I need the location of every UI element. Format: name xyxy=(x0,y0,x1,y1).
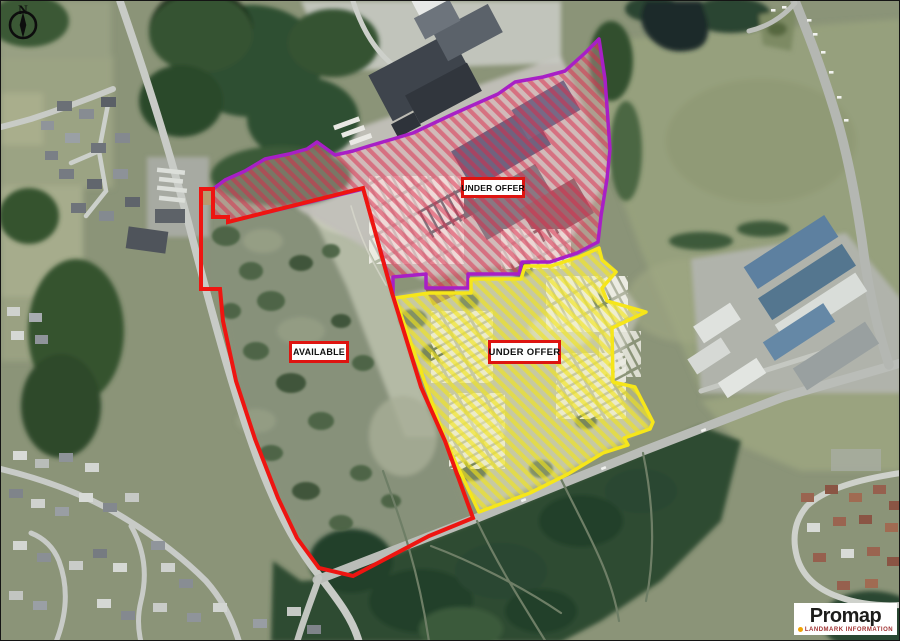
promap-wordmark: Promap xyxy=(810,606,881,626)
aerial-map: ) ) xyxy=(1,1,900,641)
promap-logo: Promap LANDMARK INFORMATION xyxy=(794,603,897,635)
promap-aerial-export: ) ) xyxy=(0,0,900,641)
under-offer-south-text: UNDER OFFER xyxy=(489,347,561,358)
available-label: AVAILABLE xyxy=(289,341,349,363)
available-text: AVAILABLE xyxy=(293,347,345,357)
under-offer-north-label: UNDER OFFER xyxy=(461,177,525,198)
under-offer-north-text: UNDER OFFER xyxy=(461,183,525,193)
under-offer-south-label: UNDER OFFER xyxy=(488,340,561,364)
landmark-tagline-text: LANDMARK INFORMATION xyxy=(805,627,893,633)
landmark-dot-icon xyxy=(798,627,803,632)
landmark-tagline: LANDMARK INFORMATION xyxy=(798,627,893,633)
